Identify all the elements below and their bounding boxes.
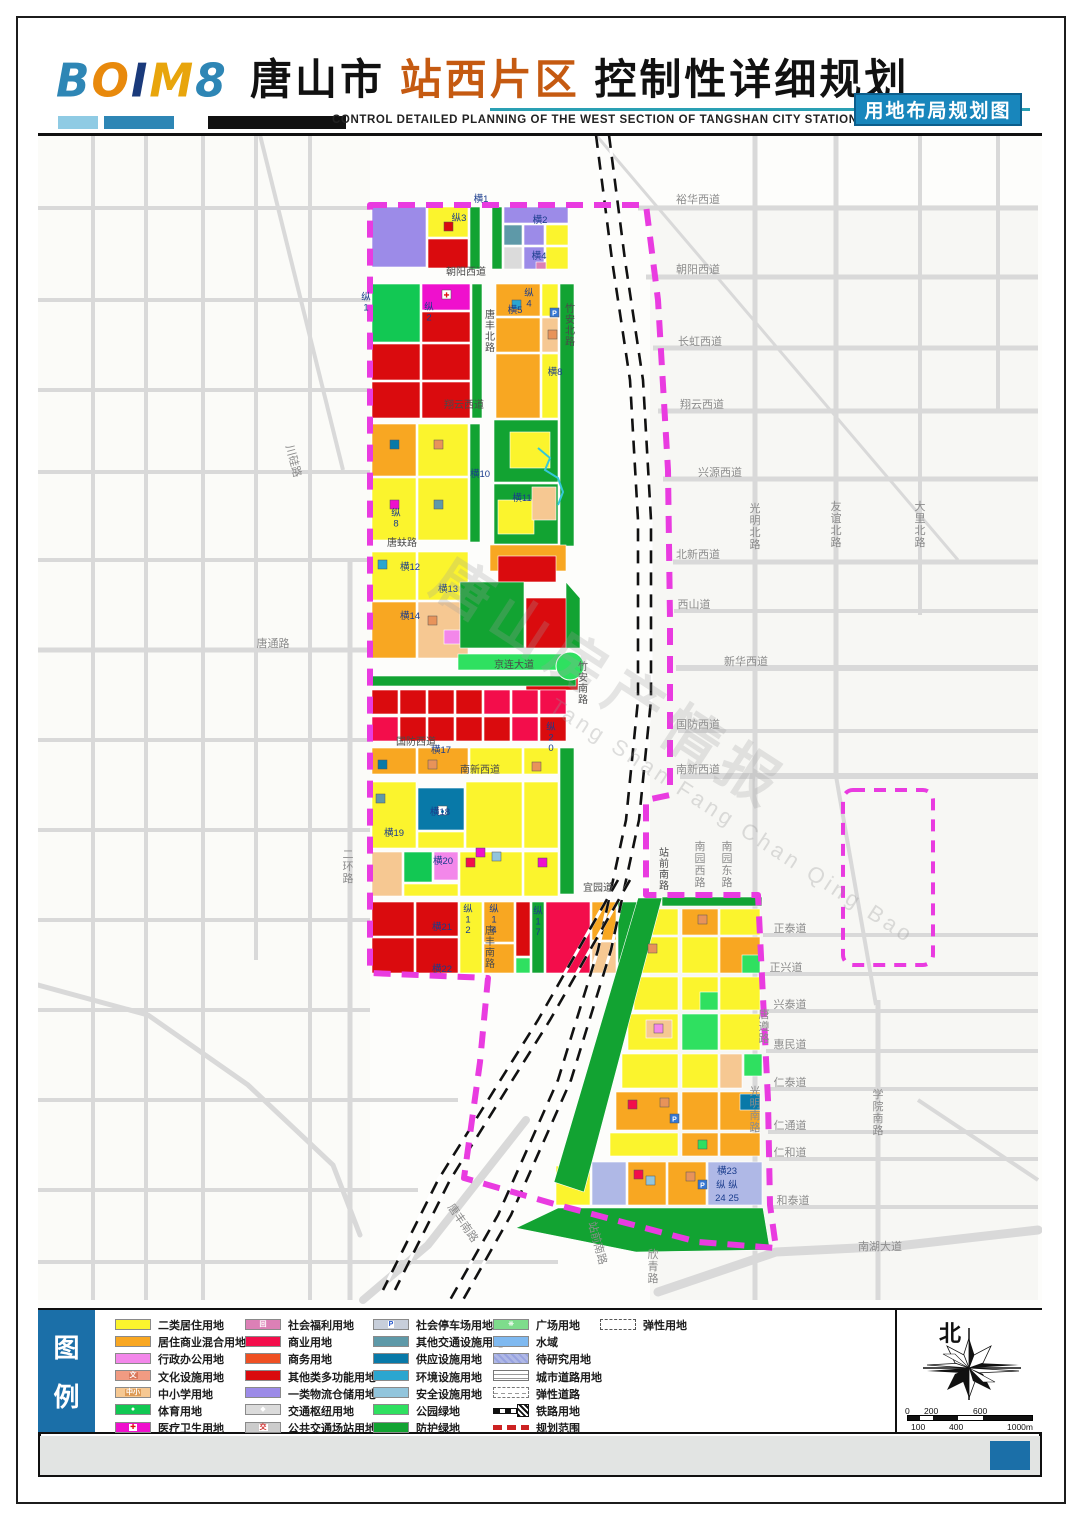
block-icon — [648, 944, 657, 953]
legend-swatch: 回 — [245, 1319, 281, 1330]
land-block — [372, 902, 414, 936]
land-block — [512, 690, 538, 714]
land-block — [372, 938, 414, 973]
block-icon-glyph: ✚ — [444, 291, 450, 299]
land-block — [428, 690, 454, 714]
land-block — [516, 958, 530, 973]
logo-bar-lightblue — [58, 116, 98, 129]
legend-swatch — [373, 1422, 409, 1433]
road-label: 和泰道 — [777, 1193, 810, 1207]
block-icon — [660, 1098, 669, 1107]
road-label: 正泰道 — [774, 921, 807, 935]
title-part-city: 唐山市 — [250, 56, 385, 103]
land-block — [372, 382, 420, 418]
legend-label: 铁路用地 — [536, 1403, 580, 1419]
road-label: 仁和道 — [774, 1145, 807, 1159]
land-block — [592, 1162, 626, 1205]
legend-swatch — [493, 1370, 529, 1381]
land-block — [662, 897, 762, 906]
land-block — [472, 284, 482, 418]
scale-tick: 100 — [911, 1422, 925, 1432]
road-label: 横4 — [532, 250, 547, 262]
road-label: 翔云西道 — [680, 397, 724, 411]
block-icon — [548, 330, 557, 339]
block-icon — [646, 1176, 655, 1185]
road-label: 光明南路 — [750, 1084, 761, 1134]
legend-swatch: 文 — [115, 1370, 151, 1381]
land-block — [510, 432, 550, 468]
legend-label: 交通枢纽用地 — [288, 1403, 354, 1419]
legend-swatch — [245, 1370, 281, 1381]
road-label: 竹安北路 — [565, 302, 575, 348]
road-label: 横17 — [431, 744, 451, 756]
legend-swatch — [493, 1404, 529, 1415]
road-label: 惠民道 — [774, 1037, 807, 1051]
legend-label: 水域 — [536, 1334, 558, 1350]
road-label: 唐遵路 — [759, 1007, 770, 1045]
legend-label: 文化设施用地 — [158, 1369, 224, 1385]
road-label: 仁泰道 — [774, 1075, 807, 1089]
logo: BOIM8 — [56, 58, 266, 116]
land-block — [546, 225, 568, 245]
road-label: 横1 — [474, 193, 489, 205]
legend-swatch: ✚ — [115, 1422, 151, 1433]
legend-swatch — [245, 1336, 281, 1347]
legend-swatch — [493, 1336, 529, 1347]
land-block — [372, 717, 398, 741]
legend-swatch — [373, 1387, 409, 1398]
legend-swatch — [245, 1353, 281, 1364]
plan-sheet: BOIM8 唐山市 站西片区 控制性详细规划 CONTROL DETAILED … — [0, 0, 1080, 1529]
road-label: 学院南路 — [873, 1087, 884, 1137]
legend-label: 供应设施用地 — [416, 1351, 482, 1367]
logo-letter: B — [56, 57, 92, 107]
block-icon — [390, 440, 399, 449]
road-label: 唐蚨路 — [387, 536, 417, 549]
legend-swatch: 交 — [245, 1422, 281, 1433]
land-block — [456, 717, 482, 741]
land-block — [372, 207, 426, 267]
legend-swatch-icon: ◆ — [259, 1406, 266, 1413]
legend-label: 医疗卫生用地 — [158, 1420, 224, 1436]
land-block — [444, 630, 460, 644]
block-icon — [698, 1140, 707, 1149]
land-block — [516, 902, 530, 956]
block-icon — [428, 760, 437, 769]
block-icon — [686, 1172, 695, 1181]
land-block — [418, 832, 464, 848]
legend-swatch — [493, 1353, 529, 1364]
legend-swatch-icon: P — [388, 1321, 395, 1328]
land-block — [610, 1133, 678, 1156]
legend-label: 行政办公用地 — [158, 1351, 224, 1367]
page-title: 唐山市 站西片区 控制性详细规划 — [250, 56, 909, 104]
road-label: 纵 纵 — [716, 1180, 738, 1191]
road-label: 朝阳西道 — [446, 265, 486, 278]
land-block — [720, 1133, 760, 1156]
road-label: 横2 — [533, 214, 548, 226]
land-block — [560, 748, 574, 894]
road-label: 横19 — [384, 827, 404, 839]
logo-letter: O — [92, 57, 131, 107]
legend: 图 例 二类居住用地居住商业混合用地行政办公用地文文化设施用地中小中小学用地●体… — [38, 1308, 1042, 1434]
road-label: 南湖大道 — [858, 1239, 902, 1253]
block-icon-glyph: P — [672, 1116, 677, 1123]
legend-swatch-icon: ✚ — [129, 1424, 137, 1431]
scale-tick: 1000m — [1007, 1422, 1033, 1432]
legend-swatch-icon: ● — [130, 1406, 136, 1413]
legend-label: 其他类多功能用地 — [288, 1369, 376, 1385]
block-icon — [698, 915, 707, 924]
road-label: 横10 — [470, 468, 490, 480]
legend-swatch — [373, 1353, 409, 1364]
legend-label: 防护绿地 — [416, 1420, 460, 1436]
legend-label: 安全设施用地 — [416, 1386, 482, 1402]
road-label: 唐丰北路 — [485, 308, 495, 354]
land-block — [542, 354, 558, 418]
road-label: 兴源西道 — [698, 465, 742, 479]
legend-tab-char-2: 例 — [53, 1377, 79, 1414]
legend-swatch — [493, 1422, 529, 1433]
legend-tab: 图 例 — [38, 1310, 95, 1432]
road-label: 横5 — [508, 304, 523, 316]
block-icon — [628, 1100, 637, 1109]
land-block — [720, 1014, 760, 1050]
legend-label: 社会福利用地 — [288, 1317, 354, 1333]
land-block — [532, 487, 556, 520]
legend-swatch — [373, 1336, 409, 1347]
legend-tab-char-1: 图 — [53, 1328, 79, 1365]
legend-swatch-icon: 中小 — [125, 1389, 141, 1396]
block-icon — [492, 852, 501, 861]
land-block — [470, 207, 480, 269]
land-use-map: ✚●PPP裕华西道朝阳西道长虹西道翔云西道兴源西道北新西道西山道新华西道国防西道… — [38, 133, 1042, 1308]
header: BOIM8 唐山市 站西片区 控制性详细规划 CONTROL DETAILED … — [38, 44, 1042, 136]
road-label: 横20 — [433, 855, 453, 867]
road-label: 翔云西道 — [444, 398, 484, 411]
subtitle-en: CONTROL DETAILED PLANNING OF THE WEST SE… — [332, 114, 858, 126]
road-label: 正兴道 — [770, 960, 803, 974]
legend-swatch — [600, 1319, 636, 1330]
land-block — [498, 500, 534, 534]
land-block — [616, 1092, 678, 1130]
legend-swatch — [115, 1336, 151, 1347]
block-icon — [654, 1024, 663, 1033]
land-block — [456, 690, 482, 714]
land-block — [466, 782, 522, 848]
logo-letters: BOIM8 — [56, 58, 228, 106]
land-block — [418, 424, 468, 476]
logo-letter: 8 — [195, 57, 228, 107]
scale-bar-segments — [907, 1415, 1033, 1421]
block-icon — [378, 560, 387, 569]
legend-label: 商业用地 — [288, 1334, 332, 1350]
legend-label: 一类物流仓储用地 — [288, 1386, 376, 1402]
land-block — [546, 247, 568, 269]
land-block — [492, 207, 502, 269]
legend-swatch — [493, 1387, 529, 1398]
logo-bar-blue — [104, 116, 174, 129]
land-block — [422, 344, 470, 380]
land-block — [428, 239, 468, 268]
land-block — [524, 782, 558, 848]
land-block — [372, 552, 416, 600]
land-block — [504, 225, 522, 245]
land-block — [400, 690, 426, 714]
block-icon — [434, 500, 443, 509]
road-label: 南园东路 — [722, 840, 733, 889]
legend-swatch-icon: ❋ — [507, 1321, 515, 1328]
bottom-strip — [40, 1436, 1040, 1475]
logo-letter: I — [131, 57, 149, 107]
logo-letter: M — [149, 57, 195, 107]
road-label: 朝阳西道 — [676, 262, 720, 276]
land-block — [496, 318, 540, 352]
land-block — [744, 1054, 762, 1076]
road-label: 二环路 — [343, 849, 354, 885]
road-label: 友谊北路 — [831, 499, 842, 549]
legend-label: 公共交通场站用地 — [288, 1420, 376, 1436]
road-label: 新华西道 — [724, 654, 768, 668]
road-label: 站前南路 — [659, 846, 669, 892]
road-label: 欣青路 — [648, 1247, 659, 1285]
legend-swatch: ◆ — [245, 1404, 281, 1415]
land-block — [372, 690, 398, 714]
land-block — [700, 992, 718, 1010]
legend-label: 其他交通设施用地 — [416, 1334, 504, 1350]
title-part-district: 站西片区 — [400, 56, 580, 103]
land-block — [484, 717, 510, 741]
road-label: 纵3 — [452, 213, 467, 224]
road-label: 大里北路 — [915, 499, 926, 549]
legend-swatch: 中小 — [115, 1387, 151, 1398]
legend-swatch — [115, 1353, 151, 1364]
legend-label: 弹性用地 — [643, 1317, 687, 1333]
block-icon — [428, 616, 437, 625]
legend-swatch-icon: 交 — [259, 1424, 268, 1431]
legend-swatch-icon: 回 — [259, 1321, 268, 1328]
scale-tick: 400 — [949, 1422, 963, 1432]
legend-label: 城市道路用地 — [536, 1369, 602, 1385]
land-block — [404, 852, 432, 882]
land-block — [372, 424, 416, 476]
logo-bar-black — [208, 116, 346, 129]
land-block — [682, 1054, 718, 1088]
block-icon — [634, 1170, 643, 1179]
legend-label: 规划范围 — [536, 1420, 580, 1436]
legend-swatch: ● — [115, 1404, 151, 1415]
land-block — [720, 1054, 742, 1088]
land-block — [682, 1014, 718, 1050]
legend-label: 中小学用地 — [158, 1386, 213, 1402]
block-icon-glyph: P — [700, 1182, 705, 1189]
road-label: 兴泰道 — [774, 997, 807, 1011]
road-label: 24 25 — [715, 1193, 739, 1204]
road-label: 宜园道 — [583, 881, 613, 894]
land-block — [372, 344, 420, 380]
legend-label: 广场用地 — [536, 1317, 580, 1333]
legend-label: 公园绿地 — [416, 1403, 460, 1419]
block-icon — [378, 760, 387, 769]
road-label: 横18 — [430, 806, 450, 818]
road-label: 唐通路 — [257, 636, 290, 650]
bottom-blue-mark — [990, 1441, 1030, 1470]
legend-swatch — [245, 1387, 281, 1398]
block-icon — [476, 848, 485, 857]
legend-label: 待研究用地 — [536, 1351, 591, 1367]
legend-label: 居住商业混合用地 — [158, 1334, 246, 1350]
legend-swatch — [115, 1319, 151, 1330]
legend-label: 商务用地 — [288, 1351, 332, 1367]
land-block — [682, 937, 718, 973]
road-label: 光明北路 — [750, 501, 761, 551]
road-label: 横21 — [432, 921, 452, 933]
land-block — [504, 247, 522, 269]
legend-swatch — [373, 1404, 409, 1415]
road-label: 仁通道 — [774, 1118, 807, 1132]
road-label: 西山道 — [678, 597, 711, 611]
land-block — [512, 717, 538, 741]
land-block — [496, 354, 540, 418]
scale-bar: 0 200 600 100 400 1000m — [907, 1406, 1033, 1432]
land-block — [720, 909, 760, 935]
road-label: 横22 — [432, 963, 452, 975]
road-label: 横14 — [400, 610, 420, 622]
north-rose-icon — [909, 1324, 1029, 1404]
legend-label: 体育用地 — [158, 1403, 202, 1419]
block-icon — [434, 440, 443, 449]
legend-label: 二类居住用地 — [158, 1317, 224, 1333]
block-icon — [466, 858, 475, 867]
block-icon — [532, 762, 541, 771]
road-label: 横8 — [548, 366, 563, 378]
map-canvas: ✚●PPP裕华西道朝阳西道长虹西道翔云西道兴源西道北新西道西山道新华西道国防西道… — [38, 133, 1042, 1308]
north-scale-box: 北 0 200 600 — [895, 1310, 1042, 1432]
road-label: 横11 — [512, 492, 531, 504]
land-block — [372, 852, 402, 896]
road-label: 长虹西道 — [678, 334, 722, 348]
legend-label: 弹性道路 — [536, 1386, 580, 1402]
block-icon-glyph: P — [552, 310, 557, 317]
legend-label: 社会停车场用地 — [416, 1317, 493, 1333]
land-block — [536, 262, 546, 269]
land-block — [742, 955, 760, 973]
land-block — [404, 884, 458, 896]
land-block — [720, 977, 760, 1010]
road-label: 南新西道 — [460, 763, 500, 776]
road-label: 横23 — [717, 1165, 737, 1177]
legend-swatch: ❋ — [493, 1319, 529, 1330]
legend-swatch — [373, 1370, 409, 1381]
land-block — [622, 1054, 678, 1088]
land-block — [372, 284, 420, 342]
block-icon — [376, 794, 385, 803]
land-block — [634, 977, 678, 1010]
land-block — [470, 424, 480, 542]
land-block — [484, 690, 510, 714]
block-icon — [538, 858, 547, 867]
land-block — [524, 225, 544, 245]
road-label: 北新西道 — [676, 547, 720, 561]
legend-swatch-icon: 文 — [129, 1372, 138, 1379]
land-block — [682, 1092, 718, 1130]
legend-swatch: P — [373, 1319, 409, 1330]
road-label: 南园西路 — [695, 840, 706, 889]
map-type-badge: 用地布局规划图 — [854, 93, 1022, 126]
road-label: 横12 — [400, 561, 420, 573]
legend-label: 环境设施用地 — [416, 1369, 482, 1385]
road-label: 裕华西道 — [676, 192, 720, 206]
